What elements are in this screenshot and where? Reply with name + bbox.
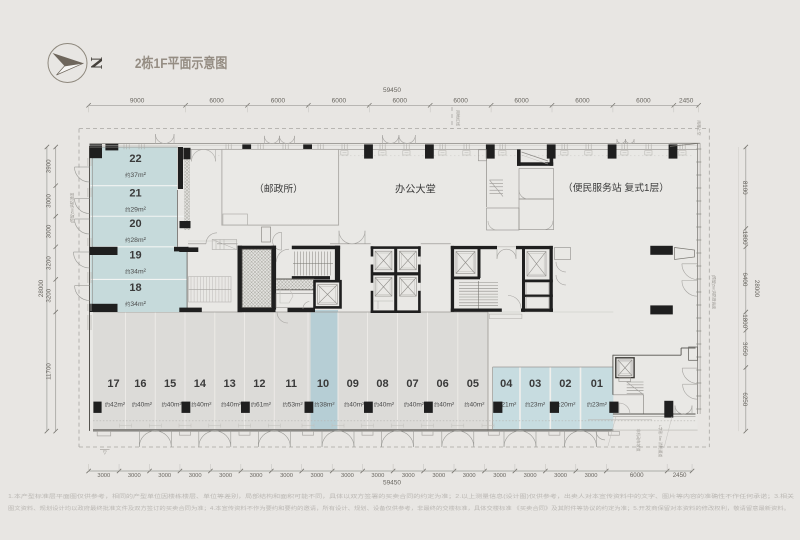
svg-text:1800: 1800 xyxy=(741,314,748,328)
svg-text:约40m²: 约40m² xyxy=(221,401,242,409)
svg-text:6000: 6000 xyxy=(453,97,468,104)
svg-text:05: 05 xyxy=(467,378,479,390)
svg-text:13: 13 xyxy=(224,378,236,390)
svg-text:28000: 28000 xyxy=(753,280,760,298)
svg-text:11700: 11700 xyxy=(46,363,53,380)
svg-text:雨棚上空: 雨棚上空 xyxy=(697,120,702,135)
svg-text:办公大堂: 办公大堂 xyxy=(395,182,436,195)
svg-text:6000: 6000 xyxy=(514,97,529,104)
svg-text:约23m²: 约23m² xyxy=(525,401,546,409)
svg-text:3000: 3000 xyxy=(463,473,476,479)
svg-text:(预留)5m消防通道: (预留)5m消防通道 xyxy=(70,193,75,224)
svg-text:9000: 9000 xyxy=(130,97,145,104)
svg-text:8100: 8100 xyxy=(741,181,748,195)
svg-text:约29m²: 约29m² xyxy=(125,205,147,213)
svg-text:6000: 6000 xyxy=(332,97,347,104)
svg-text:约40m²: 约40m² xyxy=(132,401,153,409)
svg-text:6000: 6000 xyxy=(575,97,590,104)
svg-text:09: 09 xyxy=(347,378,359,390)
svg-text:约61m²: 约61m² xyxy=(251,401,272,409)
svg-text:约40m²: 约40m² xyxy=(344,401,365,409)
svg-text:3000: 3000 xyxy=(585,473,598,479)
svg-text:3000: 3000 xyxy=(341,473,354,479)
svg-text:59450: 59450 xyxy=(383,480,401,487)
svg-text:08: 08 xyxy=(376,378,388,390)
svg-text:3000: 3000 xyxy=(432,473,445,479)
svg-text:L字形 5m 消防通道: L字形 5m 消防通道 xyxy=(658,425,663,457)
svg-text:03: 03 xyxy=(529,378,541,390)
svg-text:约34m²: 约34m² xyxy=(125,268,147,276)
svg-text:11: 11 xyxy=(285,378,297,390)
svg-text:3000: 3000 xyxy=(158,473,171,479)
svg-text:02: 02 xyxy=(559,378,571,390)
svg-text:约37m²: 约37m² xyxy=(125,171,147,179)
svg-text:3000: 3000 xyxy=(46,194,53,208)
svg-text:6000: 6000 xyxy=(271,97,286,104)
svg-text:3000: 3000 xyxy=(524,473,537,479)
svg-text:3000: 3000 xyxy=(311,473,324,479)
svg-text:6000: 6000 xyxy=(393,97,408,104)
svg-text:约53m²: 约53m² xyxy=(283,401,304,409)
svg-text:1.本产型标准层平面图仅供参考，相同的产型单位因楼栋楼层、单: 1.本产型标准层平面图仅供参考，相同的产型单位因楼栋楼层、单位等差别，局部结构和… xyxy=(8,492,794,500)
svg-text:约23m²: 约23m² xyxy=(587,401,608,409)
svg-text:N: N xyxy=(87,57,106,70)
svg-text:3200: 3200 xyxy=(46,288,53,302)
svg-text:约40m²: 约40m² xyxy=(464,401,485,409)
svg-text:3200: 3200 xyxy=(46,256,53,270)
svg-text:约40m²: 约40m² xyxy=(191,401,212,409)
svg-text:59450: 59450 xyxy=(383,87,401,94)
svg-text:14: 14 xyxy=(194,378,207,390)
svg-text:22: 22 xyxy=(129,153,141,165)
svg-text:▽: ▽ xyxy=(103,450,107,456)
svg-text:3650: 3650 xyxy=(741,342,748,356)
svg-text:约40m²: 约40m² xyxy=(404,401,425,409)
svg-text:06: 06 xyxy=(437,378,449,390)
svg-text:3000: 3000 xyxy=(493,473,506,479)
svg-text:约42m²: 约42m² xyxy=(105,401,126,409)
svg-text:（邮政所）: （邮政所） xyxy=(254,182,303,195)
svg-text:16: 16 xyxy=(134,378,146,390)
svg-text:3000: 3000 xyxy=(219,473,232,479)
svg-text:约40m²: 约40m² xyxy=(434,401,455,409)
svg-text:6000: 6000 xyxy=(630,472,644,479)
svg-text:3000: 3000 xyxy=(128,473,141,479)
svg-text:3000: 3000 xyxy=(554,473,567,479)
svg-text:3000: 3000 xyxy=(371,473,384,479)
svg-text:3900: 3900 xyxy=(46,159,53,173)
svg-text:18: 18 xyxy=(129,282,141,294)
svg-text:约38m²: 约38m² xyxy=(314,401,335,409)
svg-text:3000: 3000 xyxy=(250,473,263,479)
svg-text:3000: 3000 xyxy=(46,224,53,238)
svg-text:28000: 28000 xyxy=(38,279,45,297)
svg-text:21: 21 xyxy=(129,187,141,199)
svg-text:6250: 6250 xyxy=(741,392,748,406)
svg-text:1800: 1800 xyxy=(741,231,748,245)
svg-text:非机动车坡道: 非机动车坡道 xyxy=(636,429,641,452)
svg-text:3000: 3000 xyxy=(189,473,202,479)
svg-text:6400: 6400 xyxy=(741,273,748,287)
svg-text:2450: 2450 xyxy=(673,472,687,479)
svg-text:约34m²: 约34m² xyxy=(125,300,147,308)
svg-text:19: 19 xyxy=(129,250,141,262)
svg-text:2450: 2450 xyxy=(679,97,694,104)
svg-text:17: 17 xyxy=(107,378,119,390)
svg-text:约28m²: 约28m² xyxy=(125,236,147,244)
svg-text:01: 01 xyxy=(591,378,603,390)
svg-text:20: 20 xyxy=(129,218,141,230)
svg-text:07: 07 xyxy=(406,378,418,390)
svg-text:6000: 6000 xyxy=(209,97,224,104)
svg-text:图文资料、规划设计均以政府最终批准文件及双方签订的买卖合同为: 图文资料、规划设计均以政府最终批准文件及双方签订的买卖合同为准；4.本宣传资料不… xyxy=(8,504,790,512)
svg-text:3000: 3000 xyxy=(97,473,110,479)
svg-text:3000: 3000 xyxy=(280,473,293,479)
svg-text:约40m²: 约40m² xyxy=(374,401,395,409)
svg-text:约40m²: 约40m² xyxy=(162,401,183,409)
svg-text:3000: 3000 xyxy=(402,473,415,479)
svg-text:用地红线: 用地红线 xyxy=(456,110,462,126)
svg-text:04: 04 xyxy=(500,378,513,390)
svg-text:(预留)5m消防登高面: (预留)5m消防登高面 xyxy=(712,275,717,310)
svg-text:12: 12 xyxy=(253,378,265,390)
svg-text:2栋1F平面示意图: 2栋1F平面示意图 xyxy=(135,55,228,71)
svg-text:6000: 6000 xyxy=(636,97,651,104)
svg-text:（便民服务站 复式1层）: （便民服务站 复式1层） xyxy=(563,181,669,194)
svg-text:15: 15 xyxy=(164,378,176,390)
svg-text:10: 10 xyxy=(317,378,329,390)
